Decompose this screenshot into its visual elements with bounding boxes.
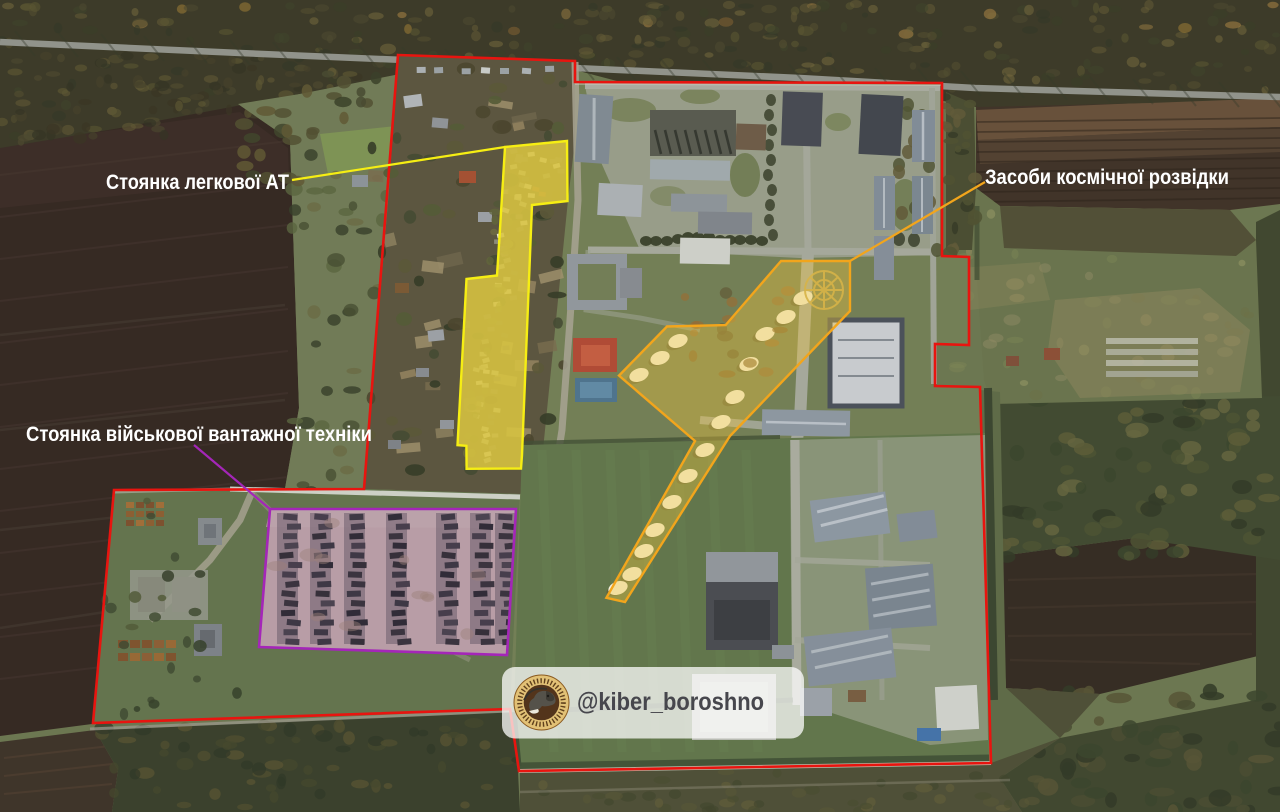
svg-text:Стоянка легкової АТ: Стоянка легкової АТ xyxy=(106,171,289,194)
svg-text:Засоби космічної розвідки: Засоби космічної розвідки xyxy=(985,166,1229,189)
svg-text:@kiber_boroshno: @kiber_boroshno xyxy=(577,688,764,716)
svg-text:Стоянка військової вантажної т: Стоянка військової вантажної техніки xyxy=(26,423,372,446)
